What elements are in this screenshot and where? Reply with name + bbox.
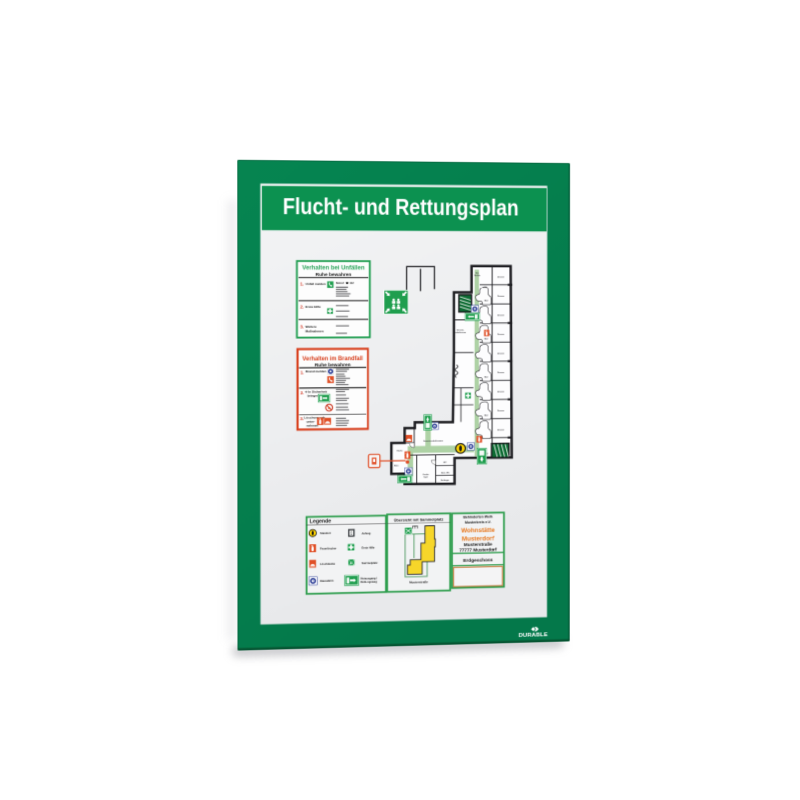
svg-text:Mobile: Mobile bbox=[474, 275, 481, 277]
svg-text:Löschdecke: Löschdecke bbox=[320, 562, 336, 566]
svg-text:77777 Musterdorf: 77777 Musterdorf bbox=[459, 547, 497, 553]
svg-text:Unfall melden: Unfall melden bbox=[305, 282, 326, 286]
svg-text:Büro: Büro bbox=[394, 465, 399, 467]
svg-text:Legende: Legende bbox=[310, 519, 332, 525]
svg-text:Standort: Standort bbox=[320, 531, 331, 535]
svg-text:1.: 1. bbox=[300, 281, 304, 286]
svg-text:DURABLE: DURABLE bbox=[518, 632, 547, 639]
svg-text:Abst. WC: Abst. WC bbox=[441, 471, 450, 474]
svg-text:Zimmer: Zimmer bbox=[497, 391, 504, 393]
svg-text:Sammelplatz: Sammelplatz bbox=[362, 561, 379, 565]
svg-text:Erdgeschoss: Erdgeschoss bbox=[463, 557, 493, 563]
svg-text:Wohnstätte: Wohnstätte bbox=[461, 527, 495, 534]
svg-text:WC: WC bbox=[443, 462, 447, 464]
svg-text:Rettungsweg: Rettungsweg bbox=[361, 580, 378, 584]
svg-text:Ruhe bewahren: Ruhe bewahren bbox=[315, 272, 351, 278]
svg-text:Notruf: Notruf bbox=[336, 281, 344, 285]
svg-text:Maßnahmen: Maßnahmen bbox=[305, 329, 323, 333]
svg-text:Zimmer: Zimmer bbox=[497, 277, 504, 279]
svg-text:Zimmer: Zimmer bbox=[497, 353, 504, 355]
svg-text:Küche: Küche bbox=[397, 450, 404, 452]
svg-text:Zimmer: Zimmer bbox=[497, 410, 504, 412]
svg-text:Brand melden: Brand melden bbox=[305, 369, 326, 373]
svg-text:Hausalarm: Hausalarm bbox=[320, 579, 334, 583]
svg-text:Verhalten bei Unfällen: Verhalten bei Unfällen bbox=[302, 265, 365, 272]
svg-text:Zimmer: Zimmer bbox=[497, 429, 504, 431]
svg-text:Zimmer: Zimmer bbox=[497, 334, 504, 336]
svg-text:Musterstraße: Musterstraße bbox=[409, 580, 428, 584]
svg-text:nehmen: nehmen bbox=[306, 423, 318, 427]
svg-text:Geräte-: Geräte- bbox=[423, 473, 430, 476]
svg-text:3.: 3. bbox=[300, 324, 304, 329]
svg-text:2.: 2. bbox=[300, 391, 304, 396]
svg-text:Behinderten Werk: Behinderten Werk bbox=[463, 515, 492, 519]
svg-text:1.: 1. bbox=[300, 370, 304, 375]
svg-text:Gemeinschaftsraum: Gemeinschaftsraum bbox=[423, 440, 443, 443]
svg-text:lager: lager bbox=[424, 476, 429, 478]
svg-text:Zimmer: Zimmer bbox=[497, 296, 504, 298]
svg-text:Flucht- und Rettungsplan: Flucht- und Rettungsplan bbox=[283, 194, 519, 222]
svg-text:Musterkreis e.V.: Musterkreis e.V. bbox=[465, 520, 491, 524]
svg-text:☎ 112: ☎ 112 bbox=[346, 281, 355, 285]
svg-text:Aufzug: Aufzug bbox=[362, 531, 371, 535]
svg-text:Zimmer: Zimmer bbox=[497, 315, 504, 317]
svg-text:Erste Hilfe: Erste Hilfe bbox=[305, 305, 321, 309]
svg-text:Verhalten im Brandfall: Verhalten im Brandfall bbox=[302, 355, 363, 362]
svg-text:bringen: bringen bbox=[307, 394, 319, 398]
svg-text:2.: 2. bbox=[300, 304, 304, 309]
svg-text:schaftsraum: schaftsraum bbox=[455, 331, 466, 334]
svg-text:Erste Hilfe: Erste Hilfe bbox=[362, 545, 375, 549]
svg-text:Heizlager: Heizlager bbox=[441, 480, 450, 482]
svg-text:Übersicht mit Sammelplatz: Übersicht mit Sammelplatz bbox=[394, 517, 444, 523]
svg-text:Zimmer: Zimmer bbox=[497, 372, 504, 374]
svg-text:Feuerlöscher: Feuerlöscher bbox=[320, 546, 336, 550]
